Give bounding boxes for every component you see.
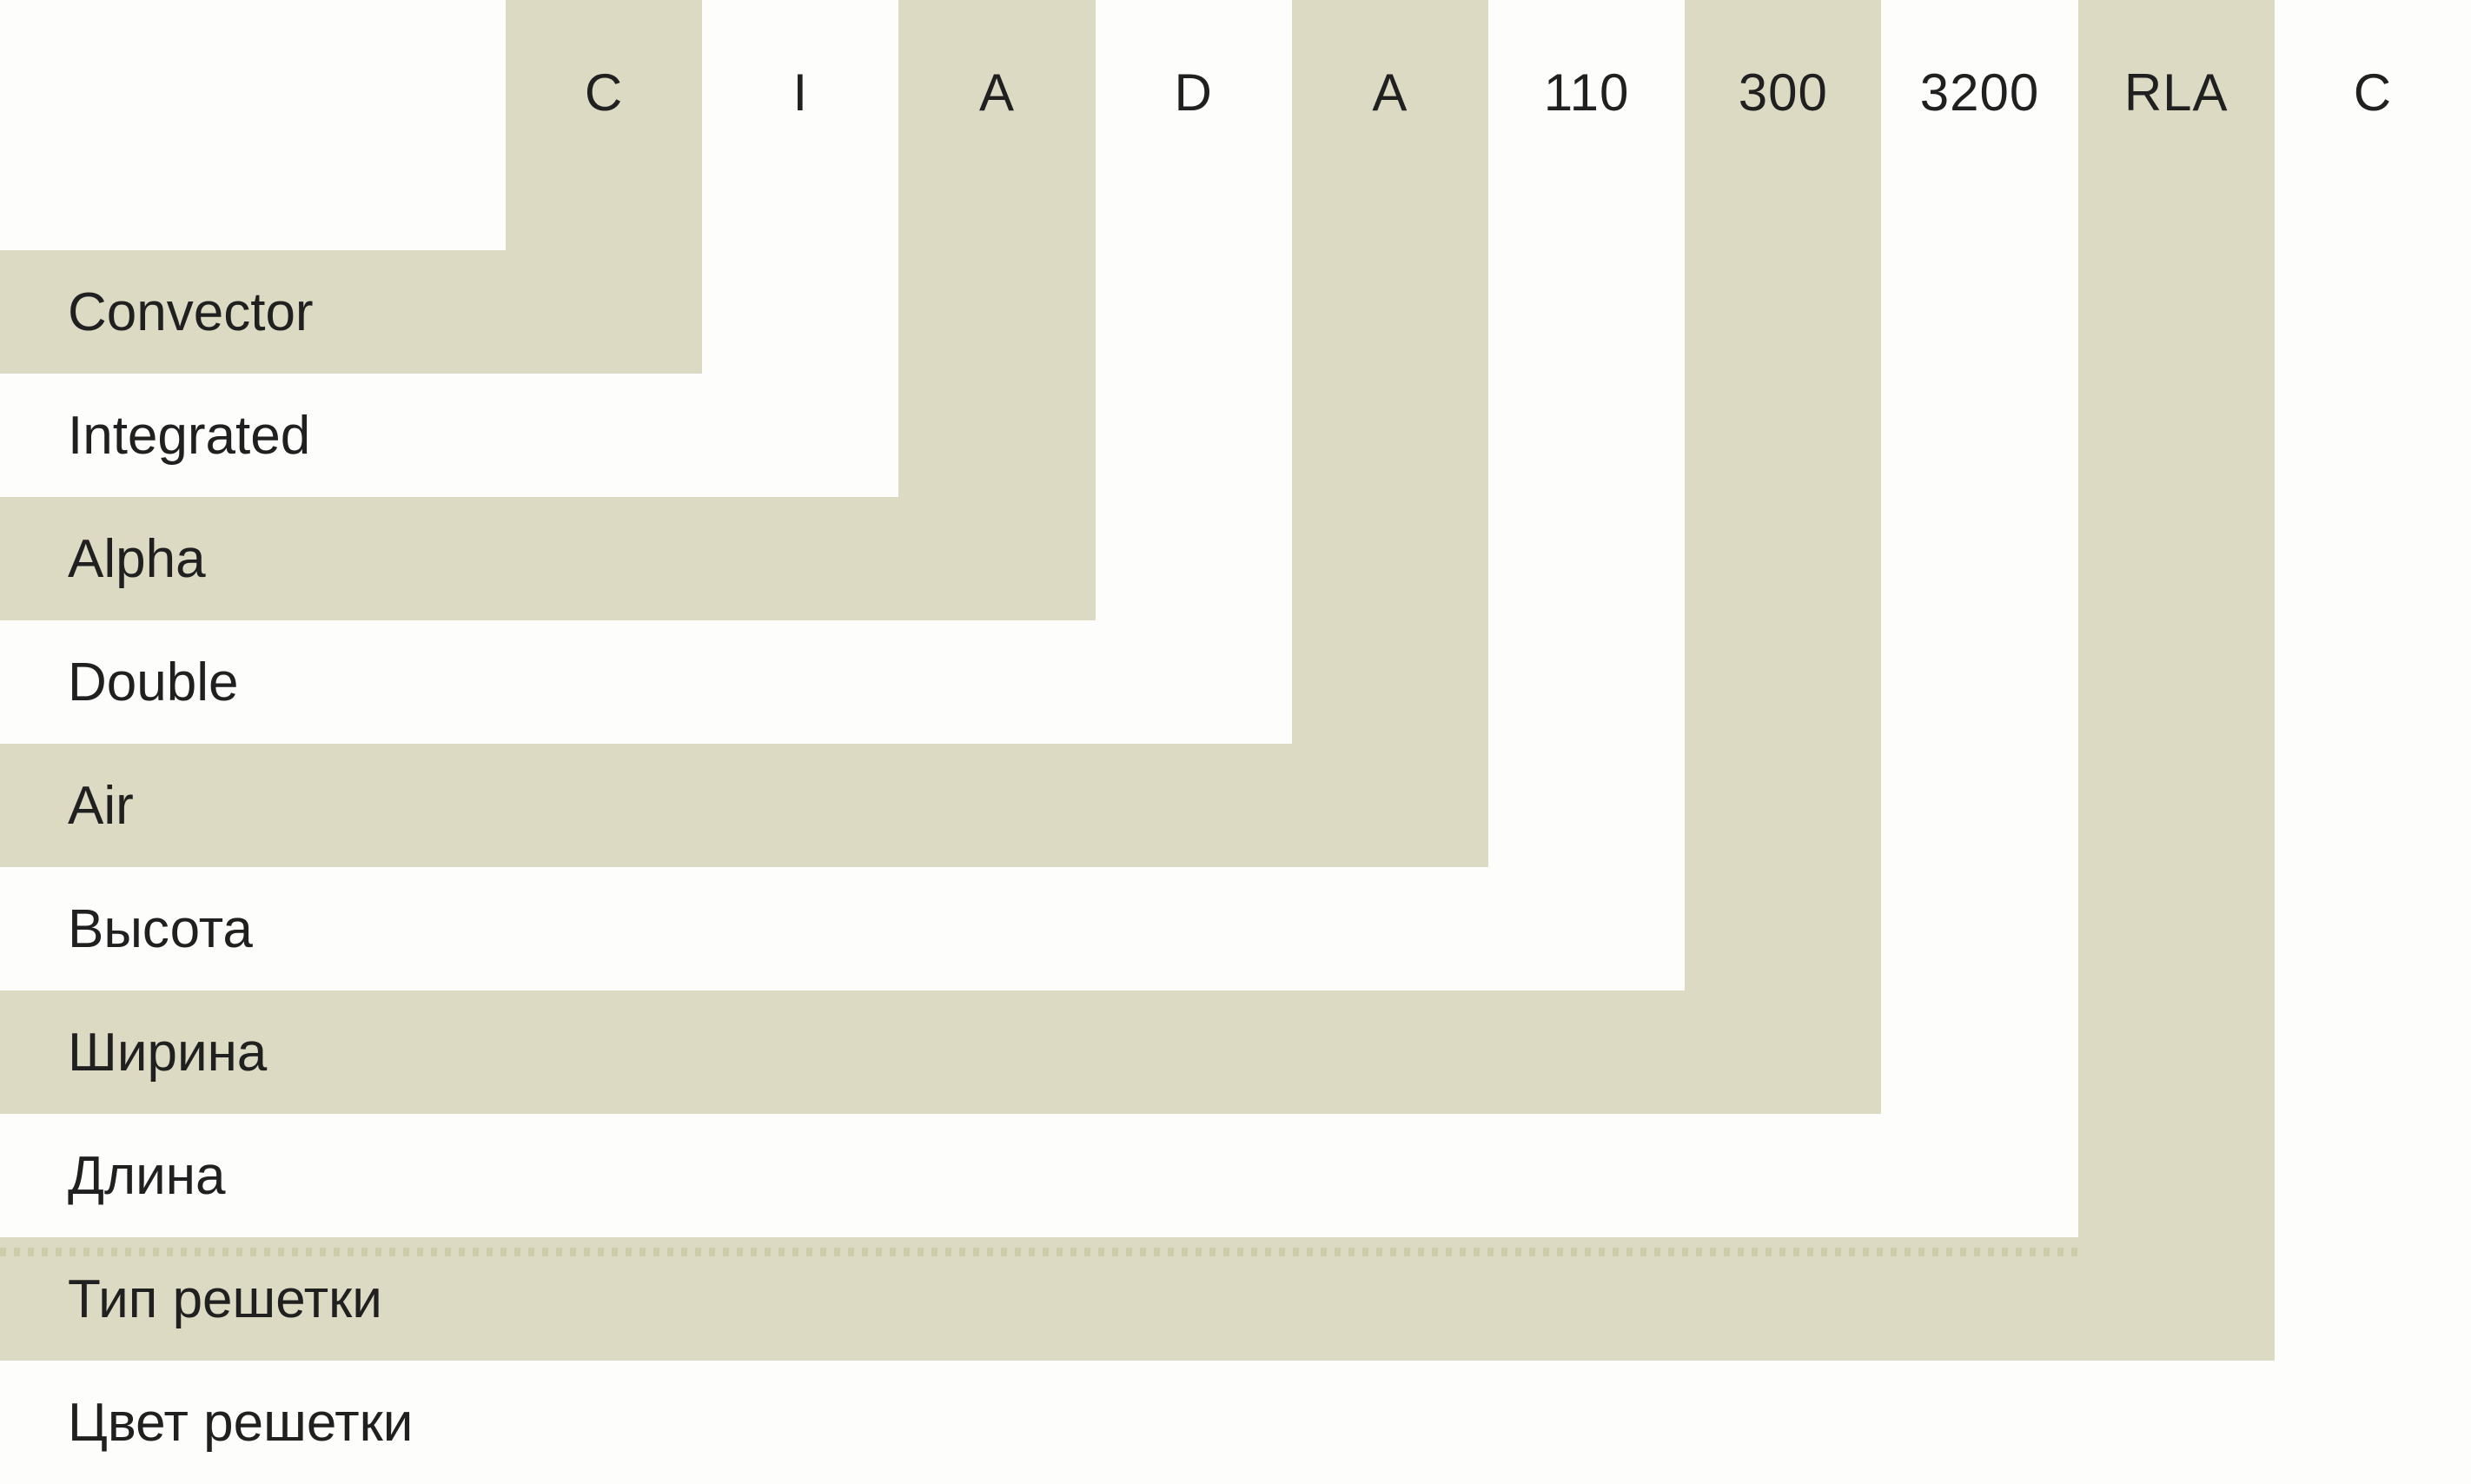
row-bar: Высота [0,867,1685,990]
code-cell: A [1292,0,1488,184]
row-label: Convector [0,282,314,343]
model-code-diagram: Convector Integrated Alpha Double Air Вы… [0,0,2471,1484]
code-cell: A [898,0,1095,184]
row-bar: Ширина [0,990,1881,1114]
row-label: Alpha [0,528,206,590]
column-band [1881,0,2077,1237]
column-band [2275,0,2471,1484]
row-label: Ширина [0,1022,267,1083]
code-cell: I [702,0,898,184]
code-cell: 300 [1685,0,1881,184]
dashed-separator [0,1248,2078,1256]
code-cell: D [1096,0,1292,184]
row-label: Цвет решетки [0,1392,413,1454]
row-label: Высота [0,898,253,960]
row-label: Double [0,652,238,713]
column-band [2078,0,2275,1361]
code-cell: C [506,0,702,184]
row-label: Длина [0,1145,226,1207]
row-bar: Integrated [0,374,898,497]
row-bar: Air [0,744,1488,867]
row-label: Тип решетки [0,1269,382,1330]
code-cell: 3200 [1881,0,2077,184]
code-cell: RLA [2078,0,2275,184]
row-label: Air [0,775,134,837]
row-label: Integrated [0,405,310,467]
row-bar: Convector [0,250,702,374]
row-bar: Alpha [0,497,1096,620]
code-cell: C [2275,0,2471,184]
row-bar: Double [0,620,1292,744]
code-cell: 110 [1488,0,1685,184]
row-bar: Длина [0,1114,2078,1237]
row-bar: Цвет решетки [0,1361,2471,1484]
